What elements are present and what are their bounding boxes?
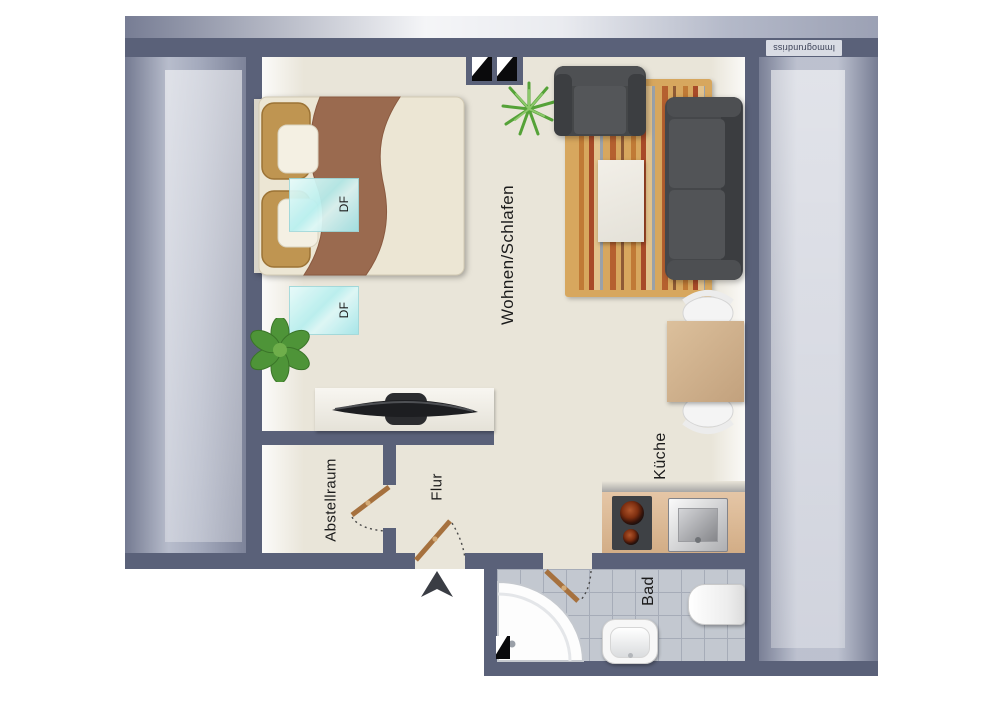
kitchen-sink-drain	[695, 537, 701, 543]
wall-bedroom-bottom	[246, 431, 494, 445]
watermark-text: Immogrundriss	[773, 43, 835, 53]
wall-bath-top-left	[465, 553, 543, 569]
knee-wall-strip-storage	[262, 445, 304, 553]
skylight-label-1: DF	[337, 196, 351, 213]
roof-panel-right	[771, 70, 845, 648]
wall-bath-left	[484, 566, 497, 676]
room-label-bath: Bad	[640, 576, 658, 606]
floor-plan: Wohnen/Schlafen Küche Flur Abstellraum B…	[0, 0, 1000, 706]
washbasin-drain	[628, 653, 633, 658]
plant-spiky-icon	[500, 80, 558, 138]
roof-shading-top	[125, 16, 878, 38]
washbasin	[602, 619, 658, 664]
bathroom-window-symbol	[496, 636, 510, 659]
watermark-badge: Immogrundriss	[766, 40, 842, 56]
stove-burner-large	[620, 501, 644, 525]
kitchen-sink	[668, 498, 728, 552]
plant-leafy-icon	[248, 318, 312, 382]
wall-storage-hall-upper	[383, 445, 396, 485]
wall-bath-top-right	[592, 553, 759, 569]
dining-table	[667, 321, 744, 402]
floor-hallway	[383, 445, 494, 569]
wall-storage-hall-lower	[383, 528, 396, 553]
kitchen-counter-shadow	[602, 481, 745, 492]
double-bed	[254, 95, 466, 277]
bathroom-window-glyph	[496, 636, 510, 659]
wall-right	[745, 57, 759, 661]
room-label-storage: Abstellraum	[323, 458, 340, 542]
bed-pillow-white-top	[278, 125, 318, 173]
room-label-hall: Flur	[429, 473, 446, 500]
corner-shower	[497, 581, 585, 662]
roof-window-block	[466, 52, 523, 85]
roof-window-glyph-1	[472, 57, 492, 81]
armchair	[552, 64, 648, 140]
room-label-living: Wohnen/Schlafen	[498, 185, 518, 325]
roof-window-symbol-2	[497, 57, 517, 81]
toilet	[688, 584, 745, 625]
entrance-arrow-icon	[421, 571, 453, 597]
roof-slope-top	[125, 16, 878, 38]
tv-flatscreen	[330, 390, 480, 428]
stove-burner-small	[623, 529, 639, 545]
wall-bottom-left	[125, 553, 415, 569]
roof-panel-left	[165, 70, 242, 542]
coffee-table	[598, 160, 644, 242]
skylight-label-2: DF	[337, 302, 351, 319]
room-label-kitchen: Küche	[652, 432, 670, 479]
roof-window-symbol-1	[472, 57, 492, 81]
sofa	[663, 95, 745, 282]
stove	[612, 496, 652, 550]
wall-bath-bottom	[484, 661, 878, 676]
roof-window-glyph-2	[497, 57, 517, 81]
